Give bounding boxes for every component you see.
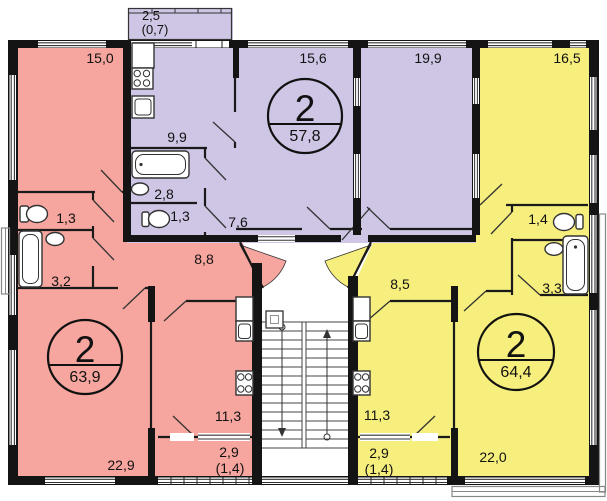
area-label-center-bath: 2,8	[154, 186, 174, 202]
washbasin-icon-center-bath	[132, 183, 149, 195]
bathtub-icon-right-bath	[563, 236, 588, 294]
bathtub-icon-left-bath	[19, 231, 42, 287]
area-label-left-hall: 8,8	[194, 251, 214, 267]
wall-center-bottom-2	[295, 235, 341, 242]
area-label-left-balcony: 2,9	[219, 444, 239, 460]
sink-icon-left-kitchen	[236, 321, 253, 341]
toilet-icon-right-wc	[554, 214, 584, 231]
area-label-left-living: 22,9	[107, 457, 134, 473]
apartment-center-total-area: 57,8	[289, 128, 320, 145]
wall-center-bottom-1	[127, 235, 258, 242]
apartment-left-rooms-count: 2	[75, 329, 96, 370]
area-label-right-room: 16,5	[553, 50, 580, 66]
stair-arrow-down-head	[278, 428, 286, 437]
stair-arrow-up-head	[323, 329, 331, 338]
service-shaft	[266, 311, 283, 328]
wall-rooms-center	[353, 40, 361, 235]
area-label-center-wc: 1,3	[170, 208, 190, 224]
wall-center-right	[472, 40, 480, 235]
washbasin-icon-left-bath	[46, 233, 64, 246]
stove-icon-center-kitchen	[132, 68, 153, 89]
balcony-glazing	[170, 433, 438, 441]
area-label-center-hall: 7,6	[228, 214, 248, 230]
wall-center-bottom-3	[368, 235, 476, 242]
wall-left-center	[123, 40, 131, 242]
bathtub-icon-center-bath	[132, 151, 189, 178]
area-label-left-room: 15,0	[86, 50, 113, 66]
area-label-right-hall: 8,5	[390, 276, 410, 292]
toilet-icon-left-wc	[20, 206, 48, 223]
area-label-center-bedroom: 15,6	[299, 50, 326, 66]
counter-icon-left-kitchen	[236, 297, 253, 321]
area-label-center-kitchen: 9,9	[167, 129, 187, 145]
sink-icon-center-kitchen	[132, 96, 154, 118]
area-label-left-wc: 1,3	[56, 210, 76, 226]
floor-plan-drawing: 2 63,9 2 57,8 2 64,4 15,0 1,3 3,2 8,8 22…	[0, 0, 607, 501]
stove-icon-right-kitchen	[353, 371, 370, 395]
sink-icon-right-kitchen	[353, 321, 370, 341]
counter-icon-right-kitchen	[353, 297, 370, 321]
area-label-center-living: 19,9	[414, 50, 441, 66]
area-label-left-balcony-reduced: (1,4)	[216, 460, 245, 476]
toilet-icon-center-wc	[142, 211, 170, 228]
right-neighbor-balcony-rail	[600, 214, 606, 492]
counter-icon-center-kitchen	[132, 43, 154, 68]
area-label-right-living: 22,0	[479, 449, 506, 465]
area-label-right-wc: 1,4	[528, 211, 548, 227]
washbasin-icon-right-bath	[545, 243, 563, 256]
wall-stub-left-kitchen-top	[148, 286, 155, 322]
area-label-left-bath: 3,2	[51, 273, 71, 289]
wall-kitchen-center	[233, 40, 239, 78]
wall-stub-right-kitchen-top	[451, 286, 458, 322]
area-label-right-balcony: 2,9	[369, 445, 389, 461]
apartment-left-total-area: 63,9	[69, 369, 100, 386]
apartment-right-total-area: 64,4	[500, 364, 531, 381]
stairwell	[262, 311, 348, 448]
wall-stub-left-kitchen-bottom	[148, 428, 155, 476]
apartment-right-rooms-count: 2	[506, 324, 527, 365]
area-label-right-bath: 3,3	[542, 280, 562, 296]
stove-icon-left-kitchen	[236, 371, 253, 395]
apartment-center-rooms-count: 2	[295, 88, 316, 129]
area-label-right-balcony-reduced: (1,4)	[365, 461, 394, 477]
floor-plan: 2 63,9 2 57,8 2 64,4 15,0 1,3 3,2 8,8 22…	[0, 0, 607, 501]
area-label-right-kitchen: 11,3	[364, 407, 390, 423]
wall-stub-right-kitchen-bottom	[451, 428, 458, 476]
area-label-center-balcony-reduced: (0,7)	[142, 22, 169, 37]
area-label-left-kitchen: 11,3	[215, 408, 241, 424]
area-label-center-balcony: 2,5	[142, 8, 160, 23]
